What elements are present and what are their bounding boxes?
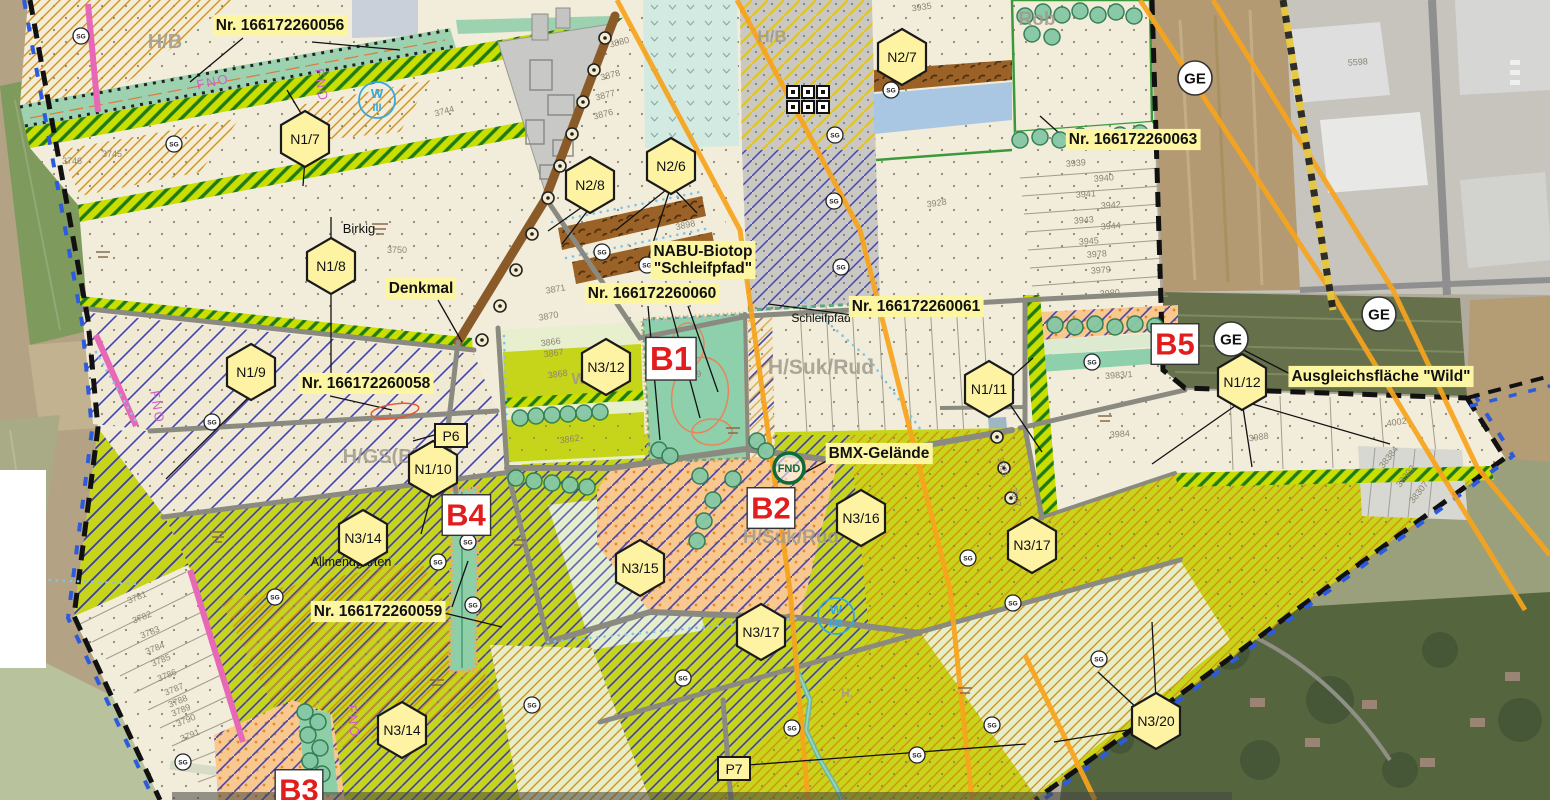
zoning-map: SGSGSGSGSGSGSGSGSGSGSGSGSGSGSGSGSGSGSGSG…: [0, 0, 1550, 800]
map-base-layers: [0, 0, 1550, 800]
legend-placeholder: [0, 470, 46, 668]
